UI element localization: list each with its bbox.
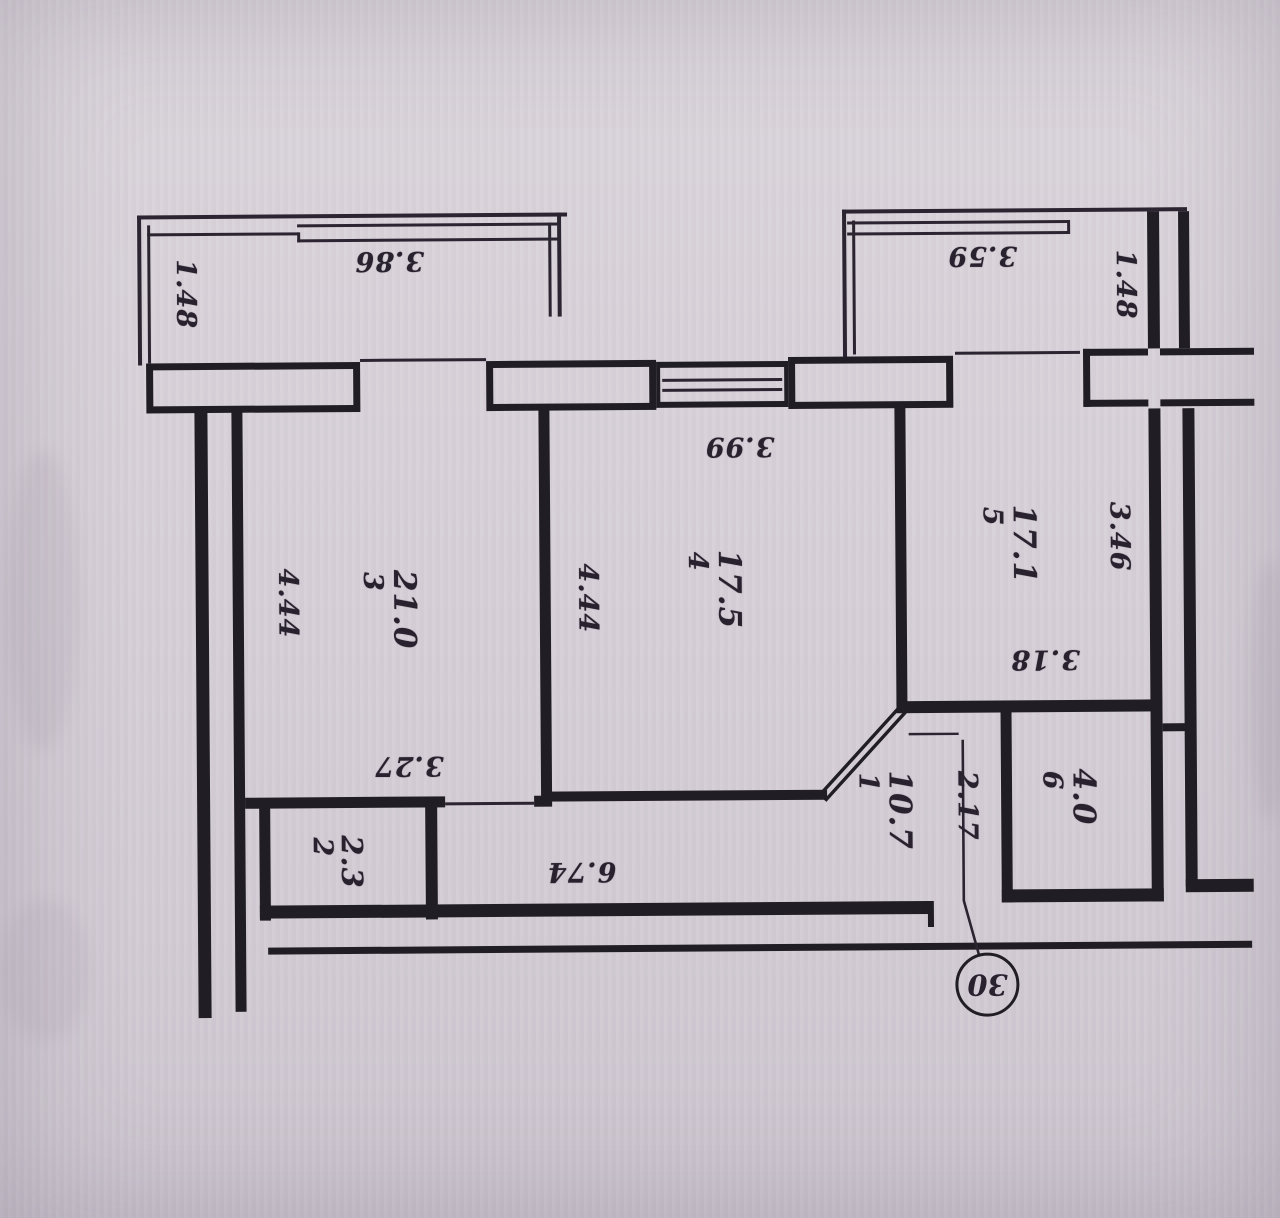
- plan-line-overlay: [0, 0, 1280, 1218]
- room-3-area: 21.0: [386, 570, 421, 650]
- room-label-6: 4.0 6: [1037, 768, 1100, 825]
- room-1-area: 10.7: [882, 770, 917, 850]
- room-4-number: 4: [683, 550, 712, 630]
- room-label-3: 21.0 3: [358, 570, 422, 650]
- dim-balcony-right-depth: 1.48: [1112, 250, 1139, 320]
- dim-corridor-length: 6.74: [547, 858, 617, 885]
- room-6-area: 4.0: [1066, 768, 1101, 825]
- dim-hall-width: 2.17: [953, 771, 980, 841]
- dim-room3-left: 4.44: [274, 568, 301, 638]
- scanned-floor-plan-page: 3.86 1.48 3.59 1.48 3.99 4.44 4.44 3.46 …: [0, 0, 1280, 1218]
- room-label-2: 2.3 2: [307, 835, 368, 889]
- apartment-number: 30: [967, 967, 1008, 1001]
- dim-room5-bottom: 3.18: [1010, 645, 1080, 672]
- room-2-number: 2: [307, 835, 336, 889]
- dim-room5-right: 3.46: [1106, 502, 1133, 572]
- room-1-number: 1: [853, 771, 882, 851]
- room-3-number: 3: [358, 570, 387, 650]
- room-label-5: 17.1 5: [978, 504, 1042, 584]
- dim-balcony-right-width: 3.59: [947, 242, 1017, 269]
- dim-balcony-left-width: 3.86: [354, 247, 424, 274]
- dim-room3-bottom: 3.27: [374, 752, 444, 779]
- room-2-area: 2.3: [335, 835, 368, 889]
- room-label-4: 17.5 4: [683, 550, 747, 630]
- room-5-area: 17.1: [1006, 504, 1041, 584]
- room-4-area: 17.5: [711, 550, 746, 630]
- room-6-number: 6: [1037, 769, 1066, 826]
- room-label-1: 10.7 1: [853, 770, 917, 850]
- dim-balcony-left-depth: 1.48: [172, 259, 199, 329]
- apartment-number-circle: 30: [955, 952, 1019, 1016]
- apartment-floor-plan: 3.86 1.48 3.59 1.48 3.99 4.44 4.44 3.46 …: [0, 0, 1280, 1218]
- room-5-number: 5: [978, 505, 1007, 585]
- dim-room4-top: 3.99: [705, 433, 775, 460]
- dim-room4-left: 4.44: [574, 563, 601, 633]
